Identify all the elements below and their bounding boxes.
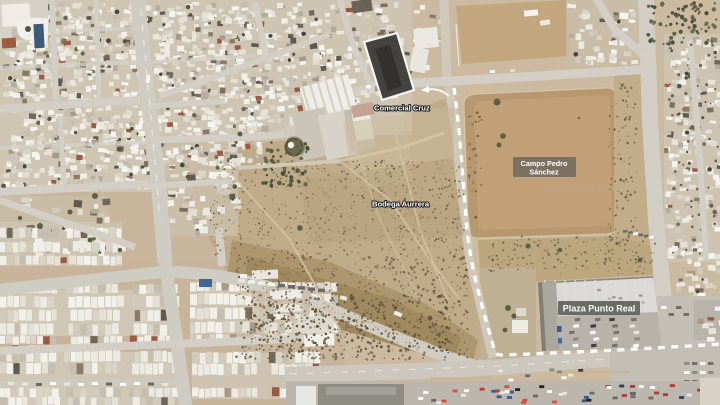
svg-text:Plaza Punto Real: Plaza Punto Real: [563, 304, 636, 314]
svg-text:Bodega Aurrera: Bodega Aurrera: [372, 200, 430, 209]
svg-text:Comercial Cruz: Comercial Cruz: [374, 104, 430, 113]
svg-text:Imágenes ©2023 Google: Imágenes ©2023 Google: [548, 185, 615, 192]
svg-text:Sánchez: Sánchez: [529, 168, 559, 177]
